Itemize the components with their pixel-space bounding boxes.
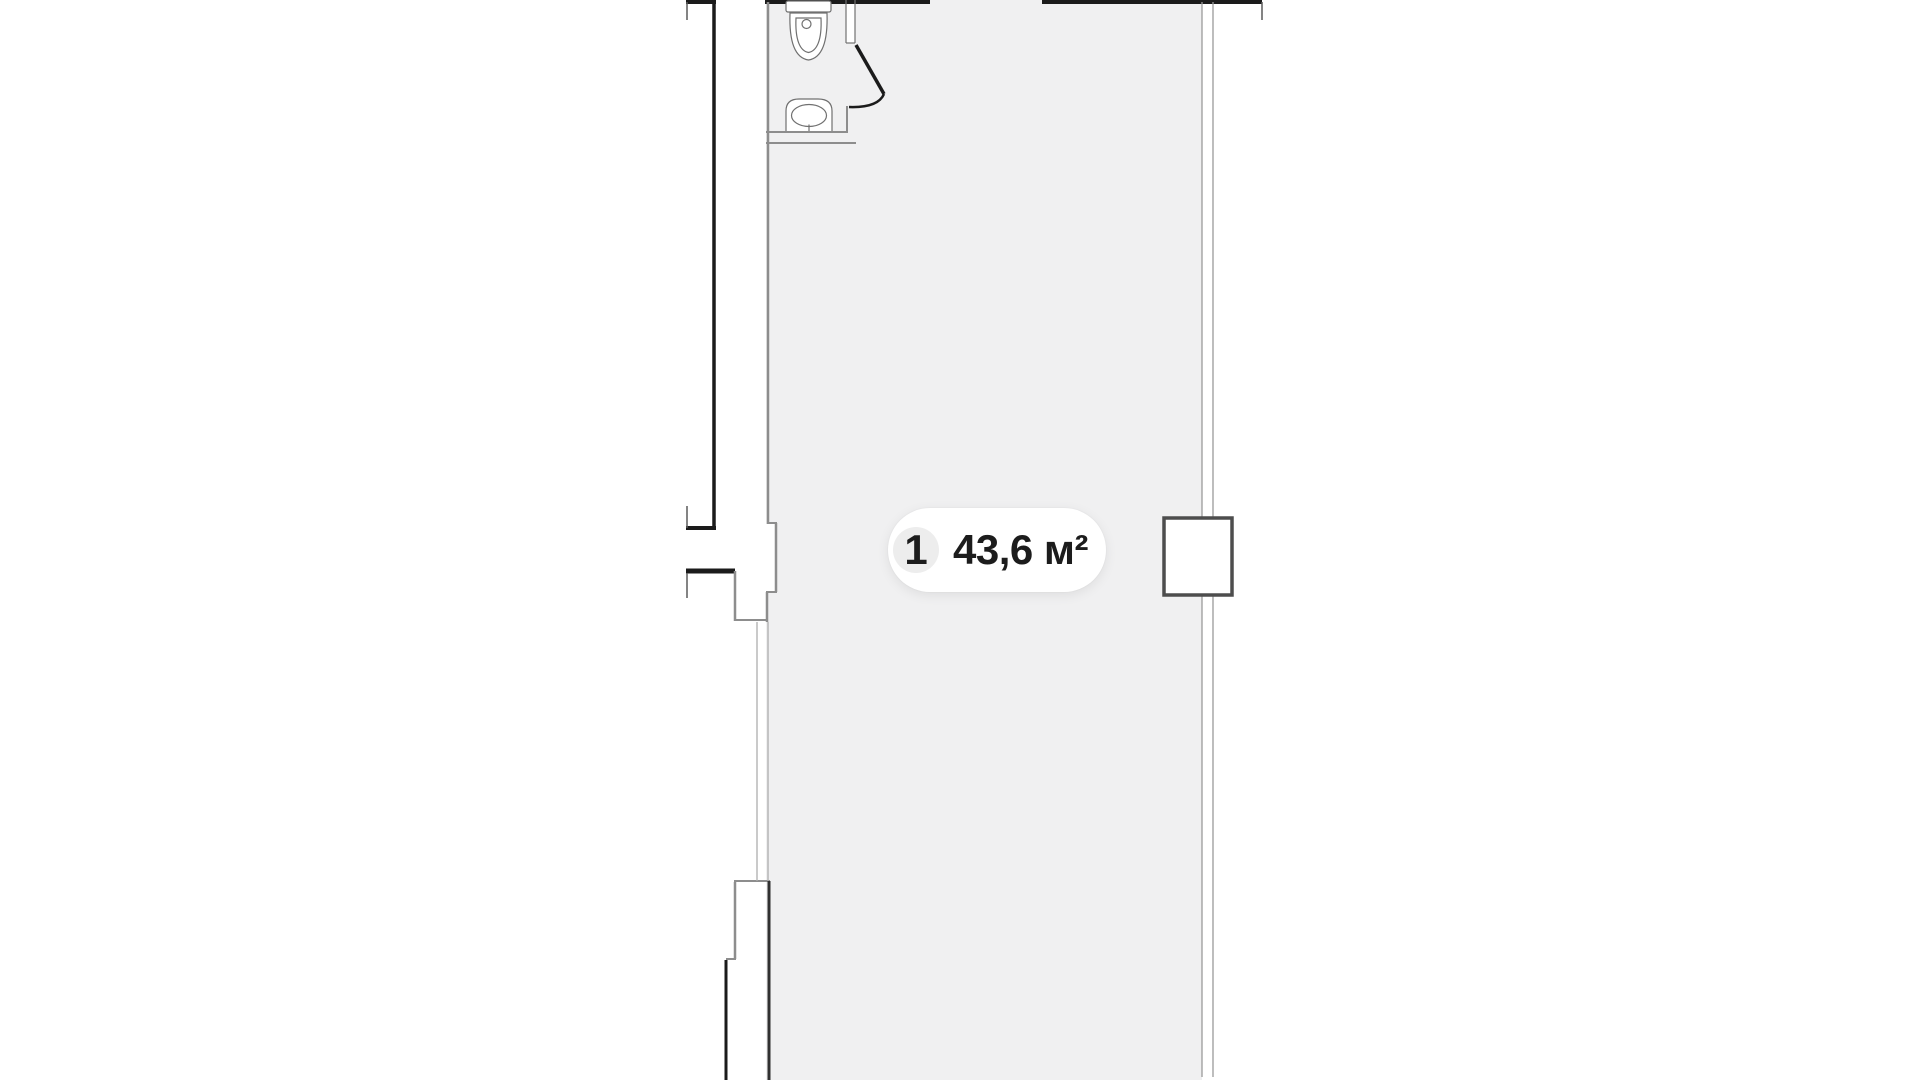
unit-badge[interactable]: 1 43,6 м² xyxy=(888,508,1106,592)
unit-area-label: 43,6 м² xyxy=(953,526,1088,574)
left-wall-recess xyxy=(766,524,776,592)
bathroom-wall-cavity xyxy=(846,0,855,43)
column-marker xyxy=(1164,518,1232,595)
sink-basin xyxy=(792,105,827,127)
sink-icon xyxy=(786,99,832,131)
toilet-tank xyxy=(786,1,831,12)
unit-number-circle: 1 xyxy=(893,527,939,573)
unit-number: 1 xyxy=(904,526,927,574)
floor-plan-page: 1 43,6 м² xyxy=(0,0,1920,1080)
